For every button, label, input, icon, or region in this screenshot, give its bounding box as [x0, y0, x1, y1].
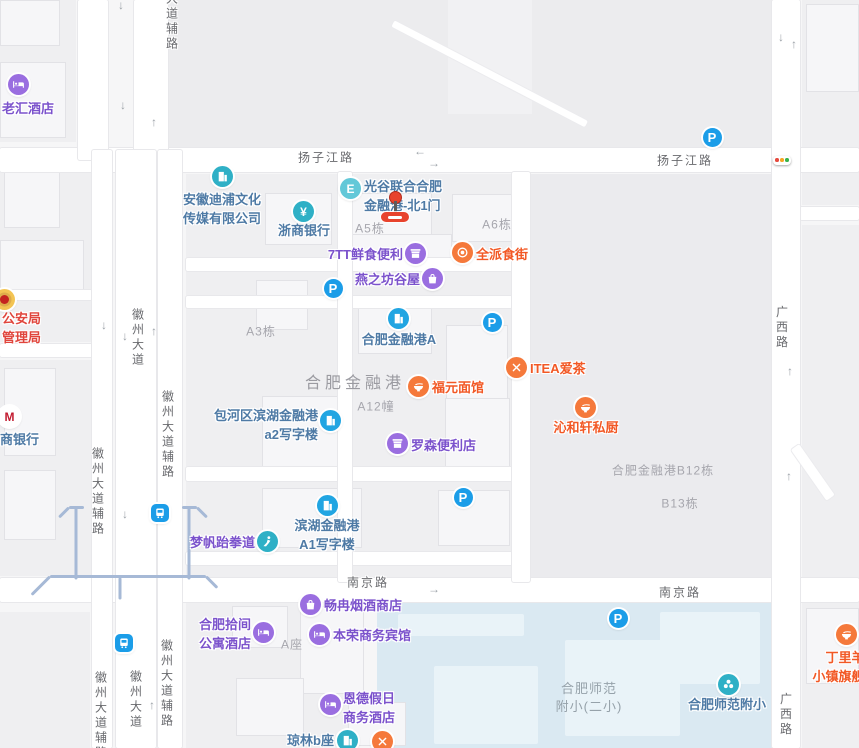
poi-label-mengfan-taekwondo[interactable]: 梦帆跆拳道	[190, 533, 255, 552]
metro-station-line	[75, 508, 78, 580]
road-label: 扬子江路	[298, 149, 354, 166]
poi-icon-tkd[interactable]	[257, 531, 278, 552]
one-way-arrow-icon: ↓	[122, 329, 128, 343]
poi-label-line: 7TT鲜食便利	[328, 245, 403, 264]
one-way-arrow-icon: ↓	[118, 0, 124, 12]
poi-label-line: 公安局	[2, 309, 41, 328]
one-way-arrow-icon: ↑	[786, 469, 792, 483]
poi-label-line: 丁里羊	[812, 648, 859, 667]
poi-icon-forkx[interactable]	[372, 731, 393, 748]
poi-label-public-security-bureau[interactable]: 公安局管理局	[2, 309, 41, 347]
road-label: 徽州大道	[130, 308, 147, 368]
poi-icon-bowl[interactable]	[836, 624, 857, 645]
city-block	[802, 225, 859, 595]
road	[186, 467, 530, 481]
poi-label-itea-tea[interactable]: ITEA爱茶	[530, 359, 586, 378]
poi-label-line: 管理局	[2, 328, 41, 347]
road-label: 扬子江路	[657, 152, 713, 169]
road-label: 广西路	[774, 306, 791, 351]
poi-icon-plate[interactable]	[452, 242, 473, 263]
metro-station-line	[182, 506, 197, 509]
one-way-arrow-icon: →	[428, 582, 440, 596]
poi-label-line: 包河区滨湖金融港	[214, 406, 318, 425]
poi-label-benrong-hotel[interactable]: 本荣商务宾馆	[333, 626, 411, 645]
poi-label-baohe-binhu-a2-office[interactable]: 包河区滨湖金融港a2写字楼	[214, 406, 318, 444]
poi-label-line: A1写字楼	[294, 535, 359, 554]
one-way-arrow-icon: ↑	[151, 324, 157, 338]
poi-icon-building-teal[interactable]	[212, 166, 233, 187]
poi-label-line: 合肥金融港A	[362, 330, 436, 349]
building-footprint	[4, 170, 60, 228]
building-label: 合肥金融港B12栋	[612, 462, 714, 479]
poi-label-line: 全派食街	[476, 245, 528, 264]
poi-icon-bowl[interactable]	[575, 397, 596, 418]
poi-label-quanpai-food-street[interactable]: 全派食街	[476, 245, 528, 264]
poi-label-line: 浙商银行	[278, 221, 330, 240]
poi-icon-leaf[interactable]	[718, 674, 739, 695]
traffic-light-icon	[773, 156, 791, 165]
building-footprint	[0, 240, 84, 292]
poi-label-line: 光谷联合合肥	[364, 177, 442, 196]
poi-label-zheshang-bank[interactable]: 浙商银行	[278, 221, 330, 240]
parking-icon[interactable]: P	[324, 279, 343, 298]
parking-icon[interactable]: P	[483, 313, 502, 332]
poi-label-fuyuan-noodle[interactable]: 福元面馆	[432, 378, 484, 397]
poi-label-line: ITEA爱茶	[530, 359, 586, 378]
campus-building	[398, 614, 524, 636]
poi-label-merchants-bank[interactable]: 商银行	[0, 430, 39, 449]
map-canvas[interactable]: 扬子江路扬子江路南京路南京路大道辅路徽州大道徽州大道辅路徽州大道辅路徽州大道徽州…	[0, 0, 859, 748]
building-footprint	[236, 678, 304, 736]
poi-label-line: 恩德假日	[343, 689, 395, 708]
poi-icon-bed[interactable]	[309, 624, 330, 645]
road-label: 徽州大道辅路	[93, 671, 110, 748]
poi-label-line: 罗森便利店	[411, 436, 476, 455]
poi-label-hefei-financial-port-a[interactable]: 合肥金融港A	[362, 330, 436, 349]
metro-station-line	[50, 575, 206, 578]
road-label: 南京路	[347, 574, 389, 591]
poi-label-line: 沁和轩私厨	[553, 418, 618, 437]
poi-label-line: 小镇旗舰店	[812, 667, 859, 686]
one-way-arrow-icon: ↓	[120, 98, 126, 112]
campus-label-line: 附小(二小)	[556, 698, 623, 716]
area-label: 合肥金融港	[305, 369, 405, 393]
campus-label-line: 合肥师范	[556, 680, 623, 698]
poi-icon-bag[interactable]	[300, 594, 321, 615]
poi-icon-bed[interactable]	[8, 74, 29, 95]
road	[800, 207, 859, 220]
poi-label-line: a2写字楼	[214, 425, 318, 444]
poi-label-line: 燕之坊谷屋	[355, 270, 420, 289]
poi-icon-shop[interactable]	[405, 243, 426, 264]
building-footprint	[438, 490, 510, 546]
city-block	[0, 612, 90, 748]
poi-label-line: 老汇酒店	[2, 99, 54, 118]
poi-label-line: 公寓酒店	[199, 634, 251, 653]
one-way-arrow-icon: ↑	[787, 364, 793, 378]
building-footprint	[806, 4, 859, 92]
poi-label-line: 福元面馆	[432, 378, 484, 397]
poi-icon-bag[interactable]	[422, 268, 443, 289]
campus-label: 合肥师范附小(二小)	[556, 680, 623, 716]
building-label: A12幢	[357, 398, 394, 415]
building-label: A3栋	[246, 323, 276, 340]
poi-label-line: 本荣商务宾馆	[333, 626, 411, 645]
building-footprint	[4, 470, 56, 540]
bus-station-icon[interactable]	[151, 504, 169, 522]
road-label: 徽州大道辅路	[90, 447, 107, 537]
one-way-arrow-icon: ↓	[101, 318, 107, 332]
road	[78, 0, 108, 160]
poi-icon-bed[interactable]	[253, 622, 274, 643]
poi-label-guanggu-north-gate-1[interactable]: 光谷联合合肥金融港-北1门	[364, 177, 442, 215]
road	[116, 150, 156, 748]
poi-icon-shop[interactable]	[387, 433, 408, 454]
building-label: A座	[281, 636, 303, 653]
poi-label-hefei-normal-primary[interactable]: 合肥师范附小	[688, 695, 766, 714]
poi-label-line: 琼林b座	[287, 731, 334, 748]
poi-icon-building-teal[interactable]	[337, 730, 358, 748]
poi-label-seven-tt-convenience[interactable]: 7TT鲜食便利	[328, 245, 403, 264]
poi-label-binhu-a1-office[interactable]: 滨湖金融港A1写字楼	[294, 516, 359, 554]
poi-label-dingliyang-flagship[interactable]: 丁里羊小镇旗舰店	[812, 648, 859, 686]
parking-icon[interactable]: P	[609, 609, 628, 628]
poi-label-hefei-shijian-apartment-hotel[interactable]: 合肥拾间公寓酒店	[199, 615, 251, 653]
poi-icon-bed[interactable]	[320, 694, 341, 715]
road-label: 徽州大道辅路	[159, 639, 176, 729]
road-label: 大道辅路	[164, 0, 181, 52]
bus-station-icon[interactable]	[115, 634, 133, 652]
parking-icon[interactable]: P	[454, 488, 473, 507]
one-way-arrow-icon: →	[428, 156, 440, 170]
poi-label-line: 畅冉烟酒商店	[324, 596, 402, 615]
road-label: 徽州大道辅路	[160, 390, 177, 480]
one-way-arrow-icon: ↑	[151, 115, 157, 129]
one-way-arrow-icon: ↓	[122, 507, 128, 521]
road-label: 徽州大道	[128, 670, 145, 730]
building-label: A5栋	[355, 220, 385, 237]
poi-icon-exit[interactable]: E	[340, 178, 361, 199]
poi-icon-building-azure[interactable]	[388, 308, 409, 329]
poi-label-line: 传媒有限公司	[183, 209, 261, 228]
building-footprint	[300, 606, 364, 694]
poi-label-line: 梦帆跆拳道	[190, 533, 255, 552]
one-way-arrow-icon: ←	[414, 144, 426, 158]
one-way-arrow-icon: ↑	[149, 698, 155, 712]
poi-label-anhui-dipu-media[interactable]: 安徽迪浦文化传媒有限公司	[183, 190, 261, 228]
poi-label-line: 安徽迪浦文化	[183, 190, 261, 209]
poi-icon-building-azure[interactable]	[320, 410, 341, 431]
poi-icon-yen[interactable]: ¥	[293, 201, 314, 222]
building-label: A6栋	[482, 216, 512, 233]
poi-label-yanzhifang-guwu[interactable]: 燕之坊谷屋	[355, 270, 420, 289]
poi-label-qinhexuan-kitchen[interactable]: 沁和轩私厨	[553, 418, 618, 437]
building-footprint	[0, 0, 60, 46]
poi-label-changran-tobacco-shop[interactable]: 畅冉烟酒商店	[324, 596, 402, 615]
marker-gate-slot	[388, 216, 402, 219]
poi-icon-cmb[interactable]: M	[0, 406, 20, 427]
building-label: B13栋	[661, 495, 698, 512]
poi-label-ende-holiday-hotel[interactable]: 恩德假日商务酒店	[343, 689, 395, 727]
poi-label-line: 商务酒店	[343, 708, 395, 727]
metro-station-line	[69, 506, 84, 509]
road-label: 广西路	[778, 693, 795, 738]
campus-building	[434, 666, 538, 744]
poi-label-line: 商银行	[0, 430, 39, 449]
metro-station-line	[119, 578, 122, 600]
road-label: 南京路	[659, 584, 701, 601]
poi-icon-building-azure[interactable]	[317, 495, 338, 516]
road	[772, 0, 800, 748]
poi-icon-forkx[interactable]	[506, 357, 527, 378]
poi-label-line: 滨湖金融港	[294, 516, 359, 535]
one-way-arrow-icon: ↓	[778, 30, 784, 44]
poi-icon-bowl[interactable]	[408, 376, 429, 397]
poi-label-qionglin-b[interactable]: 琼林b座	[287, 731, 334, 748]
poi-label-line: 合肥师范附小	[688, 695, 766, 714]
poi-label-line: 合肥拾间	[199, 615, 251, 634]
one-way-arrow-icon: ↑	[791, 37, 797, 51]
campus-building	[660, 612, 760, 684]
poi-label-laohui-hotel[interactable]: 老汇酒店	[2, 99, 54, 118]
poi-label-lawson-convenience[interactable]: 罗森便利店	[411, 436, 476, 455]
parking-icon[interactable]: P	[703, 128, 722, 147]
